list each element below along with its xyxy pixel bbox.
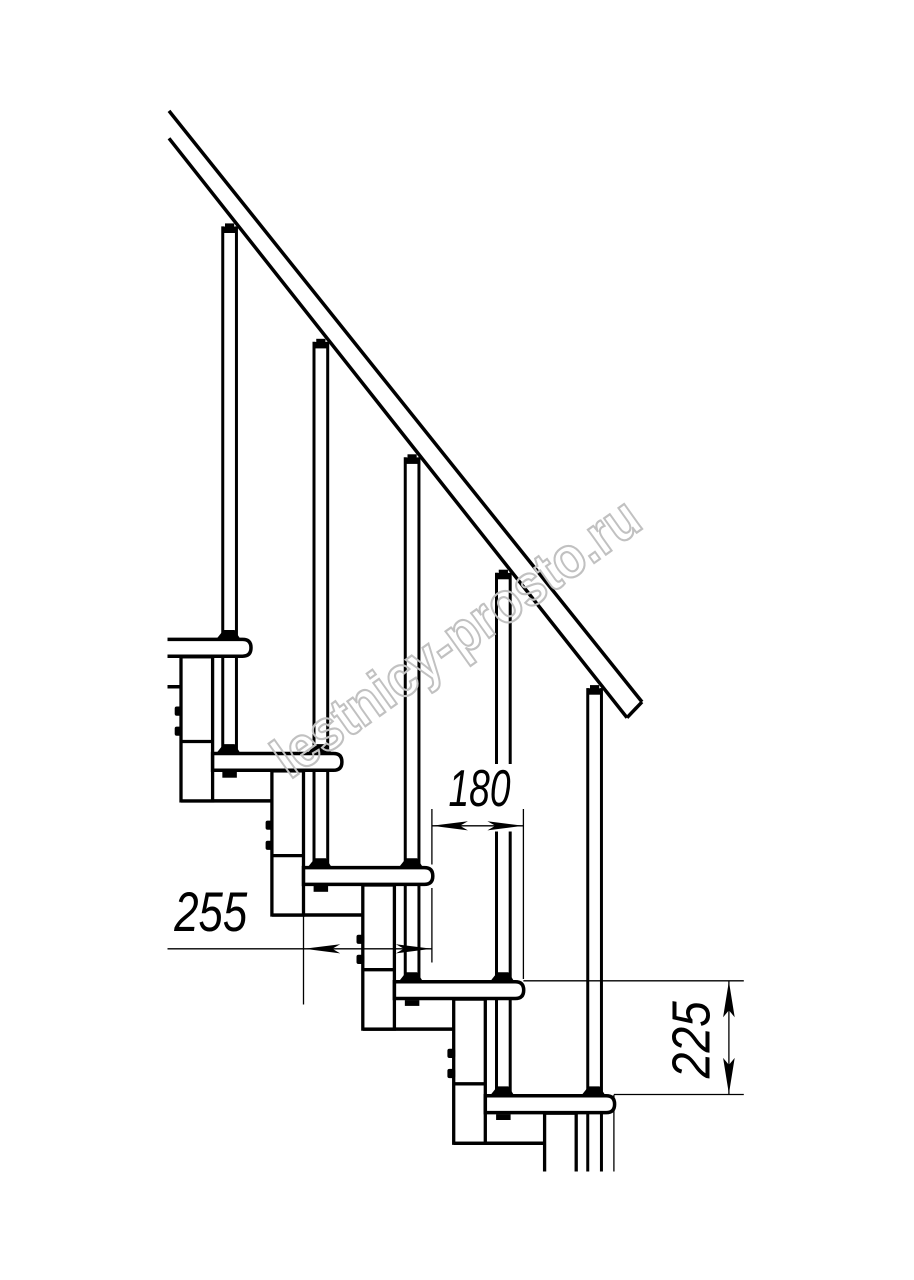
svg-text:255: 255 bbox=[173, 880, 247, 943]
svg-text:180: 180 bbox=[449, 760, 511, 818]
svg-text:225: 225 bbox=[662, 1000, 722, 1079]
